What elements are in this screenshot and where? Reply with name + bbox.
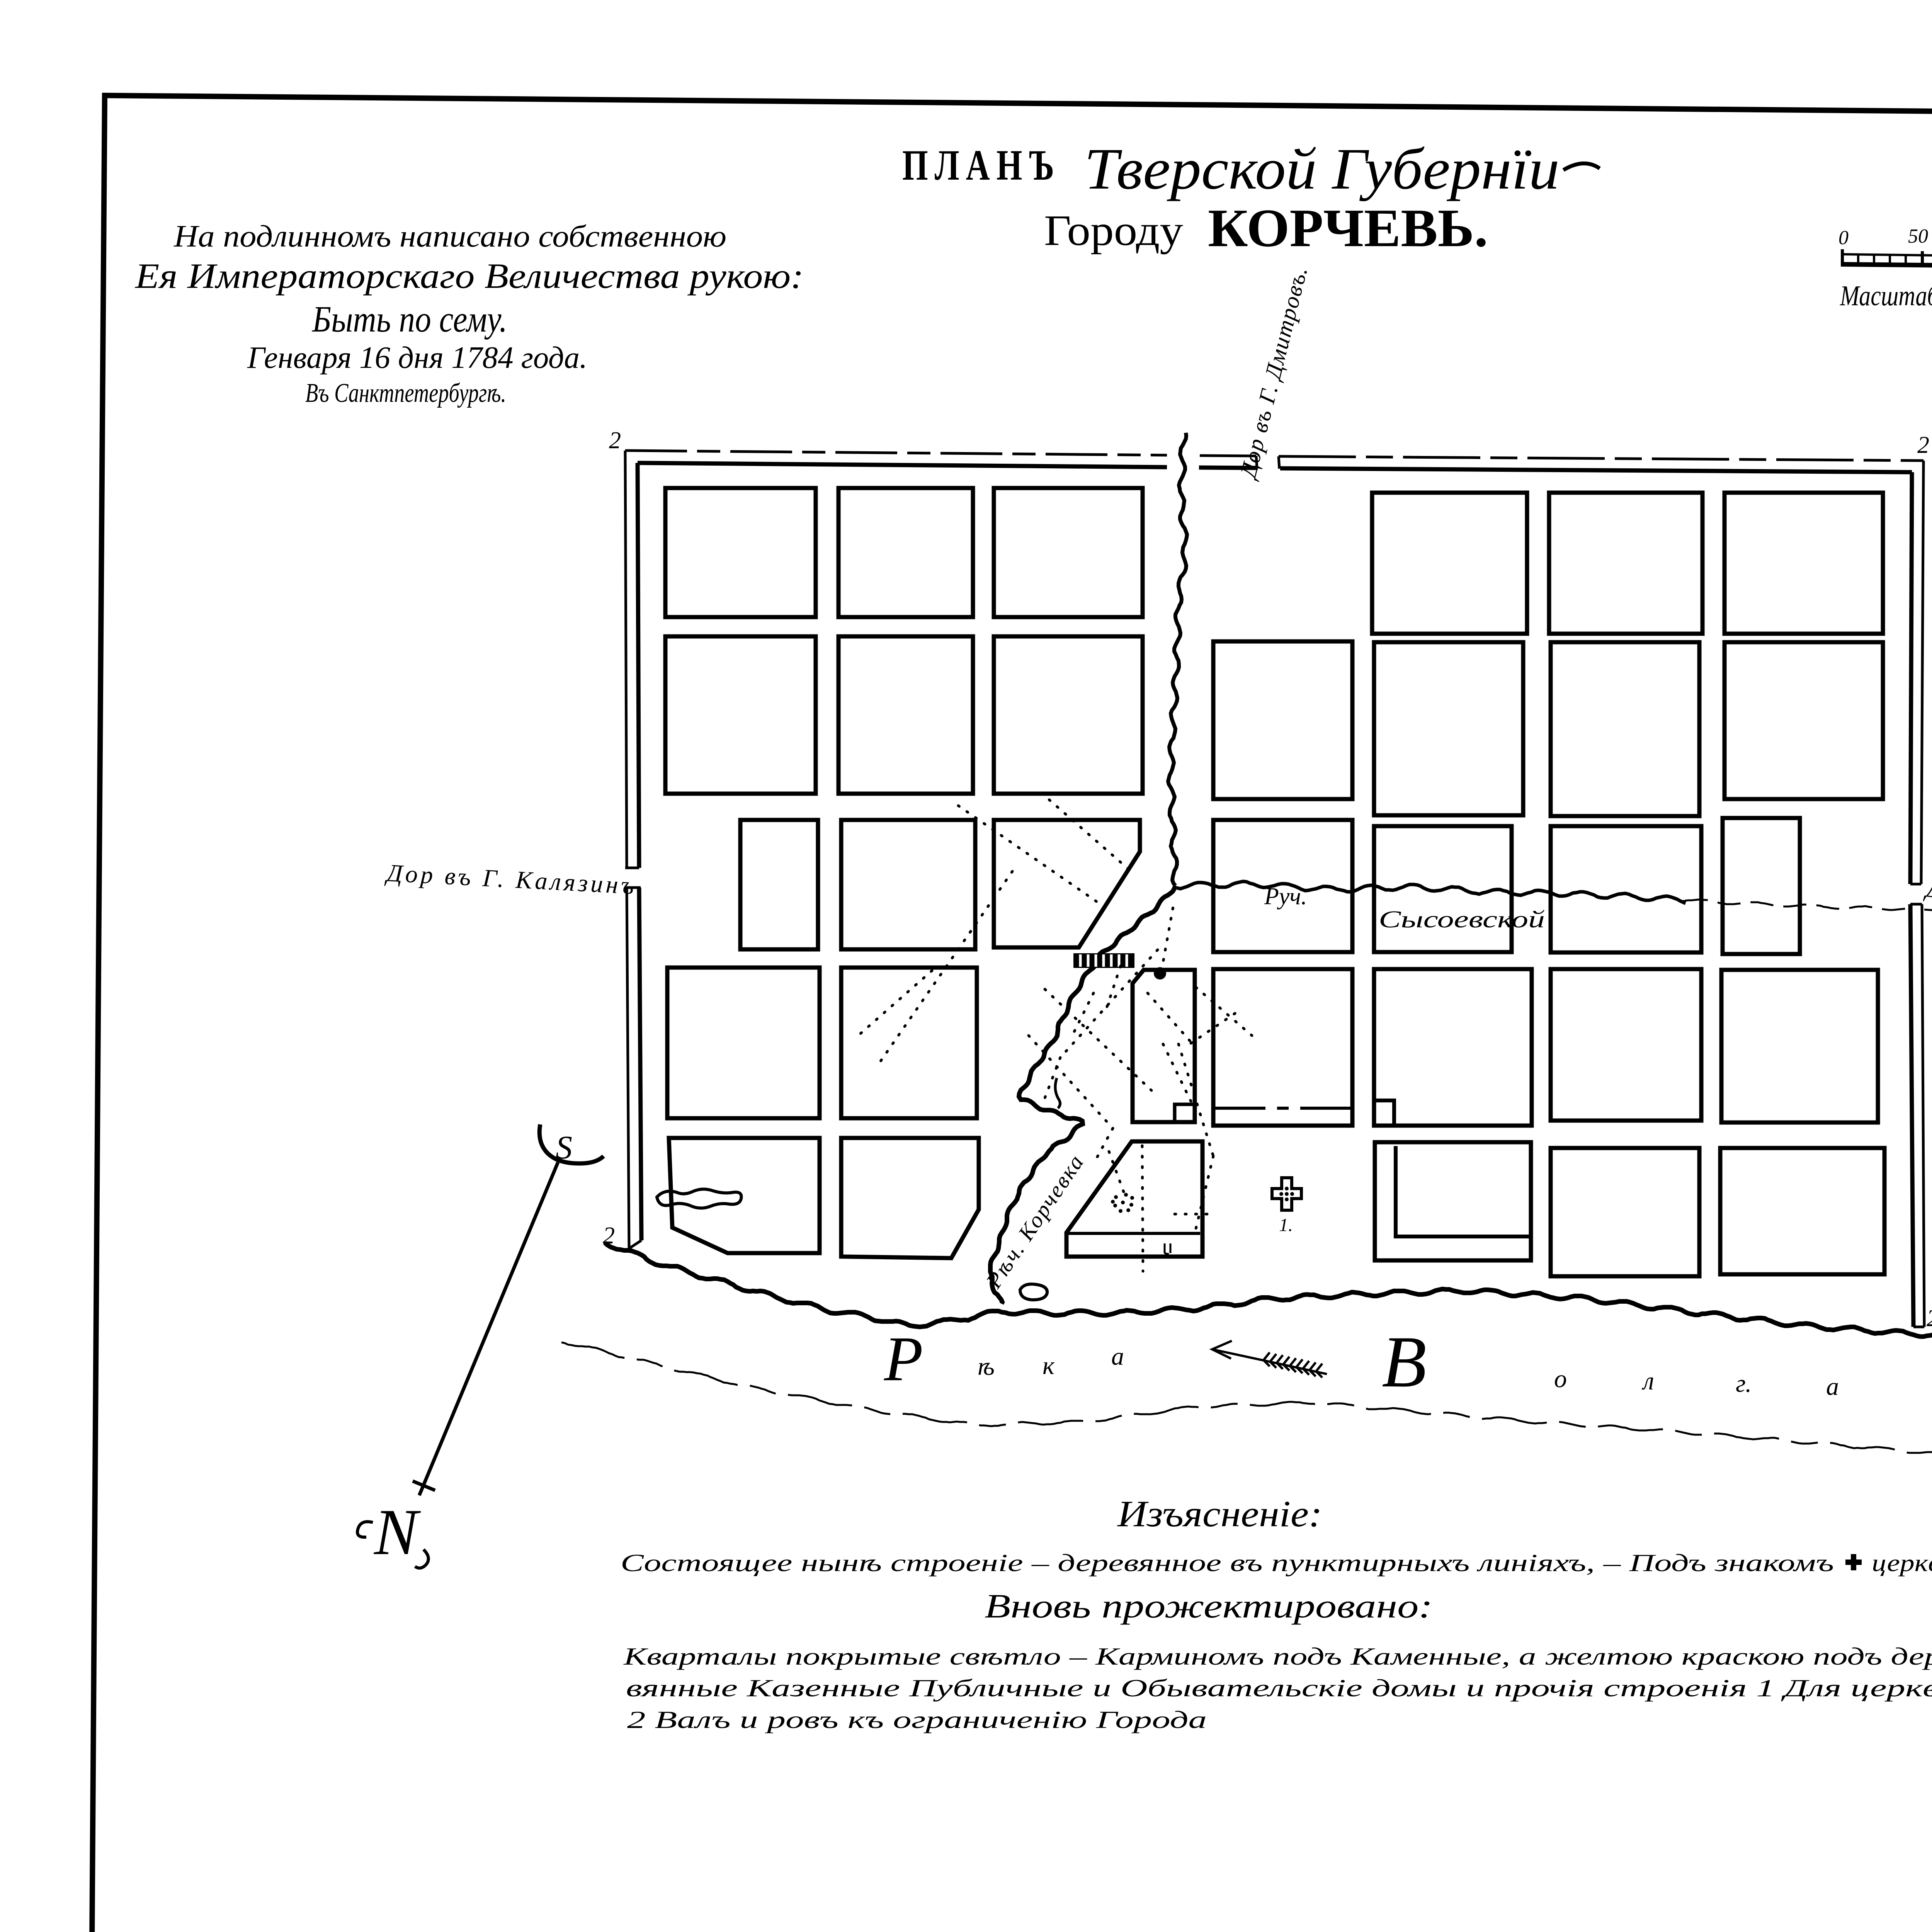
svg-text:Генваря 16 дня 1784 года.: Генваря 16 дня 1784 года. xyxy=(247,341,587,375)
svg-text:2 Валъ и ровъ къ ограниченію Г: 2 Валъ и ровъ къ ограниченію Города xyxy=(627,1706,1207,1733)
svg-text:Тверской Губернїи: Тверской Губернїи xyxy=(1084,136,1560,201)
svg-text:а: а xyxy=(1826,1372,1839,1401)
svg-text:Сысоевской: Сысоевской xyxy=(1379,906,1545,933)
svg-text:Руч.: Руч. xyxy=(1264,883,1307,910)
svg-text:Масштабъ въ Анг. дюймѣ 150 саж: Масштабъ въ Анг. дюймѣ 150 саженъ xyxy=(1840,280,1932,312)
svg-text:2: 2 xyxy=(609,427,621,454)
svg-text:КОРЧЕВЬ.: КОРЧЕВЬ. xyxy=(1208,198,1488,258)
svg-text:ѣ: ѣ xyxy=(978,1352,995,1381)
svg-text:50: 50 xyxy=(1908,225,1928,247)
svg-text:Быть по сему.: Быть по сему. xyxy=(311,298,507,340)
svg-text:вянные Казенные Публичные и Об: вянные Казенные Публичные и Обывательскі… xyxy=(626,1674,1932,1702)
svg-text:0: 0 xyxy=(1838,227,1849,249)
svg-text:ПЛАНЪ: ПЛАНЪ xyxy=(902,141,1061,189)
svg-text:а: а xyxy=(1111,1342,1124,1371)
svg-text:л: л xyxy=(1641,1367,1654,1395)
svg-text:о: о xyxy=(1554,1365,1567,1393)
svg-text:Ея Императорскаго Величества р: Ея Императорскаго Величества рукою: xyxy=(134,256,804,296)
svg-text:церкви.: церкви. xyxy=(1872,1549,1932,1577)
svg-text:S: S xyxy=(556,1129,572,1166)
svg-text:Кварталы покрытые свѣтло – Кар: Кварталы покрытые свѣтло – Карминомъ под… xyxy=(623,1643,1932,1670)
svg-text:Вновь прожектировано:: Вновь прожектировано: xyxy=(985,1588,1433,1625)
svg-text:2: 2 xyxy=(1917,432,1929,458)
svg-text:к: к xyxy=(1043,1352,1055,1380)
svg-text:г.: г. xyxy=(1736,1369,1752,1398)
svg-text:На подлинномъ написано собстве: На подлинномъ написано собственною xyxy=(173,219,726,253)
svg-text:В: В xyxy=(1382,1321,1427,1403)
svg-text:2: 2 xyxy=(1927,1305,1932,1332)
svg-text:N: N xyxy=(373,1496,421,1568)
svg-text:1.: 1. xyxy=(1279,1215,1293,1235)
svg-text:Р: Р xyxy=(884,1323,923,1394)
svg-text:Въ Санктпетербургѣ.: Въ Санктпетербургѣ. xyxy=(305,378,506,408)
svg-text:Изъясненіе:: Изъясненіе: xyxy=(1117,1493,1322,1534)
svg-text:Состоящее нынѣ строеніе – дер: Состоящее нынѣ строеніе – деревянное въ … xyxy=(621,1549,1834,1577)
svg-text:Городу: Городу xyxy=(1044,207,1183,255)
